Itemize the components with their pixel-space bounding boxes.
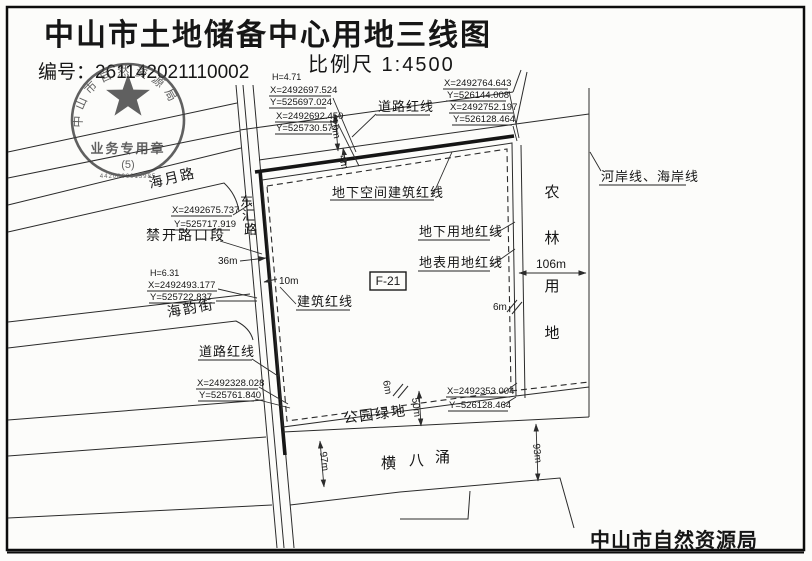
donghui-road-char: 汇	[242, 208, 256, 223]
height-label: H=4.71	[272, 72, 301, 82]
canal-south-edge	[290, 478, 574, 528]
canal-name-char: 涌	[435, 449, 450, 466]
underground-land-label: 地下用地红线	[419, 224, 503, 239]
park-green-label: 公园绿地	[342, 402, 407, 426]
river-coast-label: 河岸线、海岸线	[601, 169, 699, 184]
dim-97m: 97m	[317, 451, 330, 472]
stamp-center-text: 业务专用章	[90, 141, 165, 156]
canal-north-edge	[283, 417, 589, 432]
donghui-road-lines	[236, 85, 294, 548]
canal-name-char: 横	[381, 455, 396, 472]
parcel-id-label: F-21	[376, 274, 401, 288]
leader-lines	[216, 91, 601, 408]
coord-label: X=2492752.197	[450, 102, 517, 113]
dim-10m: 10m	[279, 276, 298, 287]
donghui-road-char: 东	[240, 194, 254, 209]
agency-name: 中山市自然资源局	[590, 528, 758, 552]
canal-name-char: 八	[409, 452, 424, 469]
dim-6m-east: 6m	[493, 302, 507, 313]
stamp-number: (5)	[121, 159, 134, 171]
parcel-id: F-21	[370, 272, 406, 290]
coord-label: X=2492764.643	[444, 78, 511, 89]
coord-label: Y=526128.464	[449, 400, 511, 411]
height-label: H=6.31	[150, 268, 179, 278]
coord-label: X=2492328.028	[197, 378, 264, 389]
coord-label: Y=525761.840	[199, 390, 261, 401]
road-redline-bottom-label: 道路红线	[199, 344, 255, 359]
callout-underlines	[147, 89, 686, 411]
dim-6m-south: 6m	[380, 380, 393, 396]
scale-label: 比例尺 1:4500	[308, 53, 455, 76]
dimension-lines	[240, 114, 586, 487]
donghui-road-char: 路	[244, 222, 258, 237]
coord-label: Y=525697.024	[270, 97, 332, 108]
street-lines	[8, 103, 272, 518]
coord-label: X=2492675.737	[172, 205, 239, 216]
hatch-marks	[393, 300, 522, 398]
coord-label: Y=526144.008	[447, 90, 509, 101]
underground-space-label: 地下空间建筑红线	[332, 185, 444, 200]
land-survey-sheet: 中山市土地储备中心用地三线图 编号：261142021110002 比例尺 1:…	[0, 0, 812, 561]
coord-label: Y=526128.464	[453, 114, 515, 125]
surface-land-label: 地表用地红线	[419, 255, 503, 270]
dim-36m: 36m	[218, 256, 237, 267]
stamp-code: 4420800013985	[100, 174, 156, 180]
agri-land-char: 农	[544, 184, 559, 201]
map-drawing: 中山市土地储备中心用地三线图 编号：261142021110002 比例尺 1:…	[0, 0, 812, 561]
building-redline-label: 建筑红线	[297, 294, 353, 309]
coord-label: X=2492493.177	[148, 280, 215, 291]
dim-4m: 4m	[336, 154, 350, 170]
agri-land-char: 用	[544, 278, 559, 295]
coord-label: X=2492697.524	[270, 85, 337, 96]
coord-label: X=2492353.004	[447, 386, 514, 397]
dim-106m: 106m	[536, 257, 566, 271]
page-title: 中山市土地储备中心用地三线图	[44, 18, 492, 52]
no-open-section-label: 禁开路口段	[146, 227, 226, 243]
road-redline-top-label: 道路红线	[378, 99, 434, 114]
agri-land-char: 林	[544, 230, 559, 247]
dim-93m: 93m	[530, 443, 543, 464]
dim-50m: 50m	[409, 397, 422, 418]
agri-land-char: 地	[544, 325, 559, 342]
